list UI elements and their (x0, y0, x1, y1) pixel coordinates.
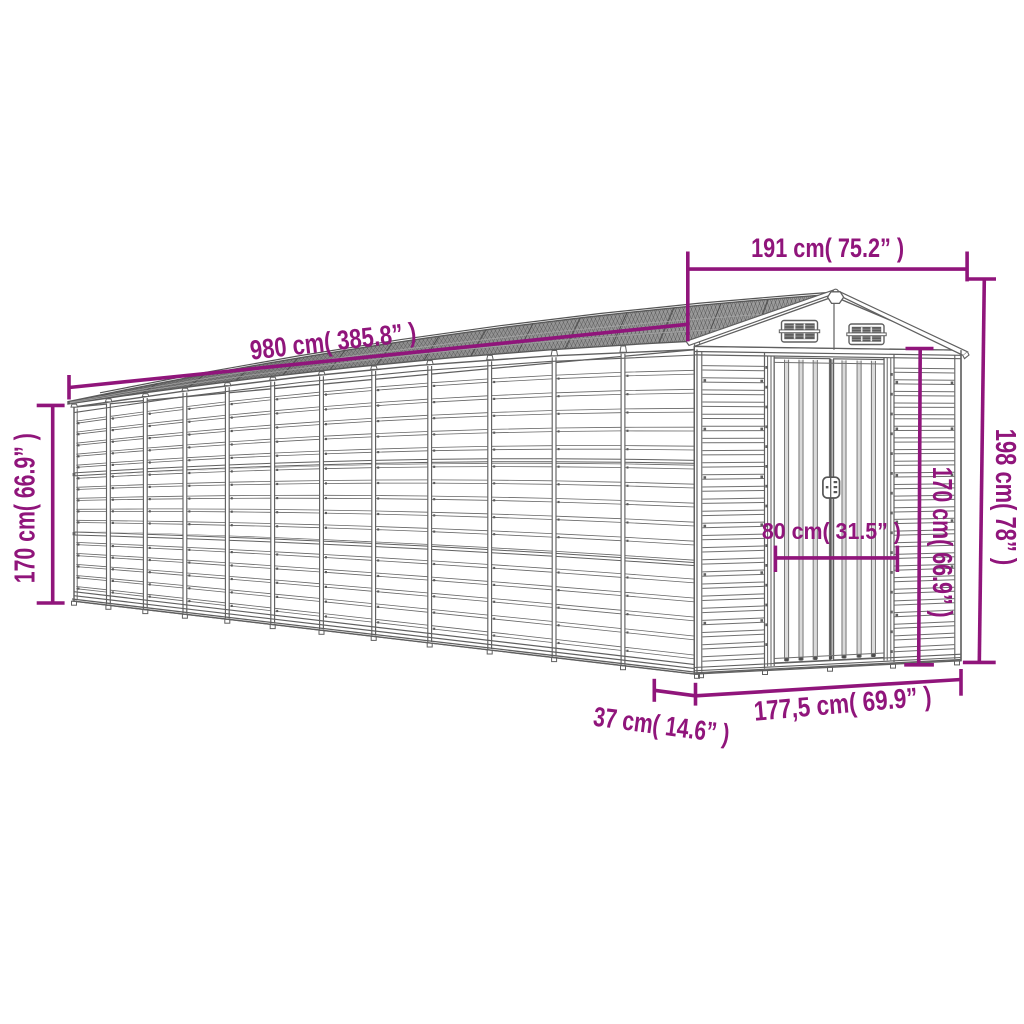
svg-text:198 cm( 78” ): 198 cm( 78” ) (989, 429, 1021, 565)
svg-text:80 cm( 31.5” ): 80 cm( 31.5” ) (762, 518, 901, 544)
svg-text:170 cm( 66.9” ): 170 cm( 66.9” ) (10, 433, 42, 583)
svg-text:170 cm( 66.9” ): 170 cm( 66.9” ) (927, 467, 958, 618)
svg-text:191 cm( 75.2” ): 191 cm( 75.2” ) (751, 233, 904, 263)
